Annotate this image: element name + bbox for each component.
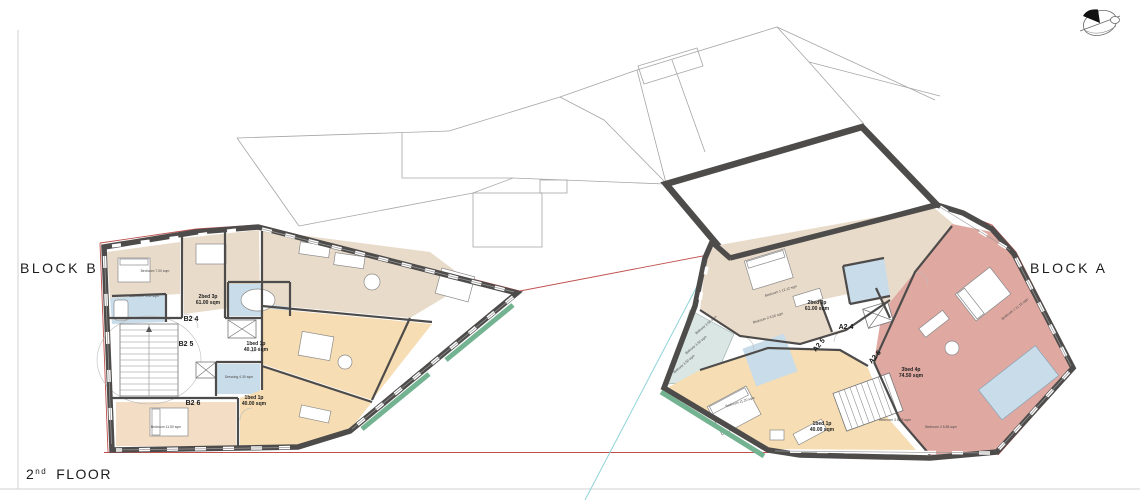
room-label-b-bedroom: Bedroom 7.00 sqm (141, 269, 170, 273)
floor-word: FLOOR (56, 466, 112, 482)
floor-ordinal: nd (35, 467, 47, 476)
unit-a24-area-label: 61.00 sqm (805, 306, 830, 312)
floor-title: 2ndFLOOR (26, 466, 112, 482)
room-label-b-bathroom: Bathroom 4.00 sqm (129, 294, 159, 298)
room-label-a-bedroom5: Bedroom 3 8.45 sqm (879, 418, 911, 422)
unit-b25-id-label: B2 5 (179, 341, 194, 348)
room-label-b-dressing: Dressing 4.30 sqm (225, 375, 253, 379)
unit-b25-area-label: 40.10 sqm (244, 347, 269, 353)
unit-3bed-area-label: 74.50 sqm (899, 373, 924, 379)
unit-a24-id-label: A2 4 (839, 324, 854, 331)
unit-b24-id-label: B2 4 (184, 316, 199, 323)
block-b-title: BLOCK B (20, 260, 98, 276)
room-label-a-bedroom6: Bedroom 2 8.85 sqm (925, 425, 957, 429)
floor-plan-sheet: 2bed 3p 61.00 sqm B2 4 B2 5 1bed 1p 40.1… (0, 0, 1140, 500)
room-label-b-bedroom2: Bedroom 11.50 sqm (151, 425, 181, 429)
floor-number: 2 (26, 466, 35, 482)
block-a-title: BLOCK A (1030, 260, 1107, 276)
block-a-plan: 2bed 3p 61.00 sqm A2 4 A2 5 A2 6 3bed 4p… (661, 127, 1073, 458)
unit-b24-area-label: 61.00 sqm (196, 300, 221, 306)
block-b-plan: 2bed 3p 61.00 sqm B2 4 B2 5 1bed 1p 40.1… (97, 227, 517, 450)
unit-b26-area-label: 40.00 sqm (242, 401, 267, 407)
unit-1bed-area-label: 40.00 sqm (810, 427, 835, 433)
unit-b26-id-label: B2 6 (186, 400, 201, 407)
north-arrow-icon (1080, 6, 1120, 39)
